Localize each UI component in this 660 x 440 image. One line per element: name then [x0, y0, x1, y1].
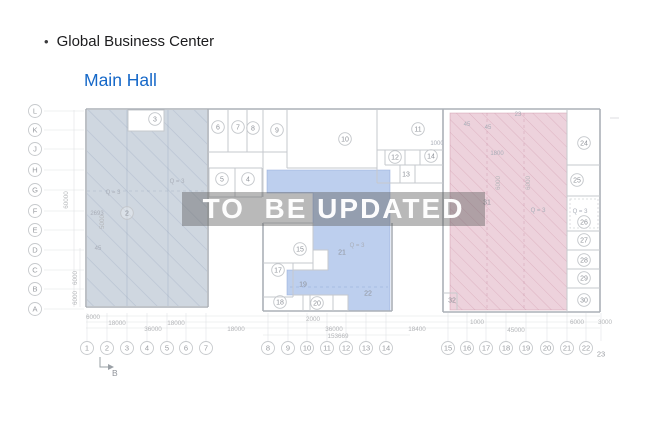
room-number: 8 — [251, 125, 255, 132]
plan-annotation: Q = 3 — [350, 243, 366, 249]
dimension-label-vertical: 6000 — [72, 271, 79, 286]
grid-letter: J — [33, 145, 37, 154]
plan-annotation: 45 — [95, 246, 102, 252]
grid-letter: G — [32, 186, 38, 195]
grid-letter: D — [32, 246, 38, 255]
room-number: 10 — [341, 136, 349, 143]
dimension-label: 1000 — [470, 319, 485, 326]
plan-annotation: 23 — [515, 112, 522, 118]
grid-number: 4 — [145, 344, 149, 353]
grid-number: 13 — [362, 344, 370, 353]
room-number: 15 — [296, 246, 304, 253]
dimension-label-vertical: 6000 — [72, 291, 79, 306]
grid-number: 12 — [342, 344, 350, 353]
room-number: 5 — [220, 176, 224, 183]
grid-number: 3 — [125, 344, 129, 353]
grid-number: 11 — [323, 344, 331, 353]
dimension-label: 18400 — [408, 326, 426, 333]
room-number: 2 — [125, 210, 129, 217]
grid-number: 5 — [165, 344, 169, 353]
room-number: 9 — [275, 127, 279, 134]
grid-number: 8 — [266, 344, 270, 353]
room-number: 4 — [246, 176, 250, 183]
plan-annotation: Q = 3 — [573, 209, 589, 215]
dimension-label: 36000 — [325, 326, 343, 333]
room-number: 14 — [427, 153, 435, 160]
room-number: 32 — [448, 297, 456, 304]
grid-number: 16 — [463, 344, 471, 353]
plan-annotation: 45 — [464, 122, 471, 128]
grid-letter: C — [32, 266, 38, 275]
grid-letter: K — [32, 126, 37, 135]
dimension-label: 3000 — [598, 319, 613, 326]
grid-number: 22 — [582, 344, 590, 353]
grid-letter: B — [32, 285, 37, 294]
dimension-label-vertical: 60000 — [63, 191, 70, 209]
room-number: 13 — [402, 171, 410, 178]
grid-number: 6 — [184, 344, 188, 353]
plan-annotation: 1800 — [490, 151, 504, 157]
grid-number: 9 — [286, 344, 290, 353]
grid-number: 20 — [543, 344, 551, 353]
room-number: 26 — [580, 219, 588, 226]
grid-letter: A — [32, 305, 37, 314]
grid-number: 17 — [482, 344, 490, 353]
dimension-label: 6000 — [570, 319, 585, 326]
dimension-label: 18000 — [167, 320, 185, 327]
room-number: 11 — [414, 126, 421, 133]
plan-annotation: Q = 3 — [170, 179, 186, 185]
grid-number: 15 — [444, 344, 452, 353]
dimension-label-vertical: 6000 — [525, 176, 532, 191]
room-number: 22 — [364, 290, 372, 297]
grid-letter: E — [32, 226, 37, 235]
room-number: 24 — [580, 140, 588, 147]
grid-number: 18 — [502, 344, 510, 353]
dimension-label: 153669 — [327, 333, 349, 340]
grid-number: 1 — [85, 344, 89, 353]
room-number: 17 — [274, 267, 282, 274]
grid-number: 14 — [382, 344, 390, 353]
room-number: 29 — [580, 275, 588, 282]
grid-letter: F — [33, 207, 38, 216]
grid-number: 10 — [303, 344, 311, 353]
grid-number: 2 — [105, 344, 109, 353]
room-number: 19 — [299, 281, 307, 288]
page: • Global Business Center Main Hall — [0, 0, 660, 440]
room-number: 25 — [573, 177, 581, 184]
room-number: 27 — [580, 237, 588, 244]
room-number: 12 — [391, 154, 399, 161]
plan-annotation: 45 — [485, 125, 492, 131]
dimension-label: 45000 — [507, 327, 525, 334]
room-number: 7 — [236, 124, 240, 131]
grid-number: 19 — [522, 344, 530, 353]
grid-letter: H — [32, 166, 37, 175]
section-marker: B — [100, 357, 118, 378]
dimension-label: 18000 — [108, 320, 126, 327]
watermark-band: TO BE UPDATED — [182, 192, 485, 226]
room-number: 18 — [276, 299, 284, 306]
dimension-label: 2000 — [306, 316, 321, 323]
watermark-text: TO BE UPDATED — [203, 195, 465, 223]
dimension-label-vertical: 6000 — [495, 176, 502, 191]
room-number: 20 — [313, 300, 321, 307]
room-number: 28 — [580, 257, 588, 264]
dimension-label: 6000 — [86, 314, 101, 321]
room-number: 3 — [153, 116, 157, 123]
grid-letter: L — [33, 107, 37, 116]
room-number: 21 — [338, 249, 346, 256]
grid-number: 21 — [563, 344, 571, 353]
dimension-label-vertical: 5000 — [99, 215, 106, 230]
room-number: 6 — [216, 124, 220, 131]
grid-number: 23 — [597, 350, 605, 359]
section-marker-label: B — [112, 368, 118, 378]
plan-annotation: 1000 — [430, 141, 444, 147]
room-number: 30 — [580, 297, 588, 304]
dimension-label: 36000 — [144, 326, 162, 333]
plan-annotation: Q = 3 — [531, 208, 547, 214]
plan-annotation: Q = 3 — [106, 190, 122, 196]
dimension-label: 18000 — [227, 326, 245, 333]
grid-number: 7 — [204, 344, 208, 353]
